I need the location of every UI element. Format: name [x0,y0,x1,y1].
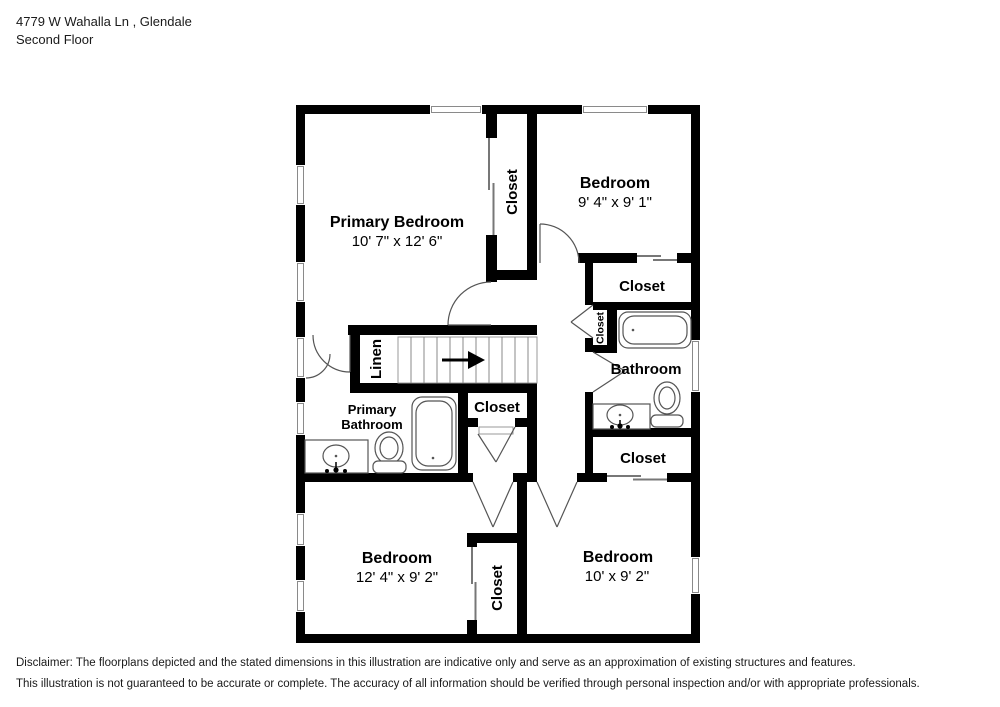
wall-segment [467,533,477,547]
wall-segment [350,383,537,393]
room-dims-bedroom-bottom-right: 10' x 9' 2" [585,568,649,585]
primary-bath-vanity [305,440,368,473]
wall-segment [486,270,537,280]
disclaimer-line-1: Disclaimer: The floorplans depicted and … [16,653,920,674]
room-label-linen: Linen [368,339,385,379]
bathroom-toilet [651,382,683,427]
bypass-door [486,138,497,235]
window [691,340,700,392]
wall-segment [607,302,617,352]
wall-segment [513,473,537,482]
disclaimer: Disclaimer: The floorplans depicted and … [16,653,920,694]
room-label-closet-small: Closet [595,311,607,344]
wall-segment [515,418,527,427]
wall-segment [677,253,700,263]
room-label-closet-lower-right: Closet [620,450,666,467]
wall-segment [458,393,468,473]
wall-segment [486,114,497,138]
wall-segment [467,620,477,634]
room-label-closet-primary: Closet [504,169,521,215]
door-arc [306,354,330,378]
window [296,580,305,612]
door-arc [313,335,350,372]
wall-segment [585,302,700,310]
primary-bath-tub [412,397,456,470]
staircase [398,337,537,383]
room-label-closet-top-right: Closet [619,278,665,295]
room-label-primary-bathroom-2: Bathroom [341,417,402,432]
door-opening [478,418,515,427]
room-label-closet-hall: Closet [474,399,520,416]
primary-bath-toilet [373,432,406,473]
room-dims-bedroom-bottom-left: 12' 4" x 9' 2" [356,569,438,586]
wall-segment [527,383,537,473]
wall-segment [527,114,537,270]
floorplan-canvas: Primary Bedroom 10' 7" x 12' 6" Bedroom … [0,0,1000,707]
wall-segment [296,473,473,482]
room-label-bathroom: Bathroom [611,361,682,378]
window [296,337,305,378]
wall-segment [517,482,527,634]
wall-outer-bottom [296,634,700,643]
door-opening [486,282,497,325]
wall-segment [350,335,360,383]
room-label-primary-bedroom: Primary Bedroom [330,214,464,231]
door-opening [585,352,593,392]
wall-segment [585,253,593,305]
wall-segment [348,325,537,335]
door-arc [448,282,491,325]
window [296,513,305,546]
room-dims-bedroom-top-right: 9' 4" x 9' 1" [578,194,652,211]
sliding-door [607,473,667,482]
window [296,402,305,435]
bathroom-vanity [593,404,650,429]
bifold-door [472,547,476,620]
sliding-door [637,253,677,263]
window [430,105,482,114]
room-label-closet-bottom: Closet [489,565,506,611]
room-label-bedroom-bottom-left: Bedroom [362,550,432,567]
window [296,262,305,302]
wall-segment [468,418,478,427]
faucet-icon [333,467,338,472]
door-arc [540,224,579,263]
door-swing [473,482,513,527]
wall-segment [577,473,607,482]
wall-segment [585,345,617,353]
window [691,557,700,594]
door-threshold [479,427,513,434]
room-label-primary-bathroom-1: Primary [348,402,397,417]
bathroom-tub [619,312,691,348]
room-label-bedroom-bottom-right: Bedroom [583,549,653,566]
door-swing [537,482,577,527]
room-label-bedroom-top-right: Bedroom [580,175,650,192]
wall-segment [470,533,517,543]
floorplan-page: 4779 W Wahalla Ln , Glendale Second Floo… [0,0,1000,707]
door-opening [305,325,348,335]
window [582,105,648,114]
faucet-icon [617,423,622,428]
disclaimer-line-2: This illustration is not guaranteed to b… [16,674,920,695]
room-dims-primary-bedroom: 10' 7" x 12' 6" [352,233,443,250]
wall-segment [667,473,700,482]
window [296,165,305,205]
